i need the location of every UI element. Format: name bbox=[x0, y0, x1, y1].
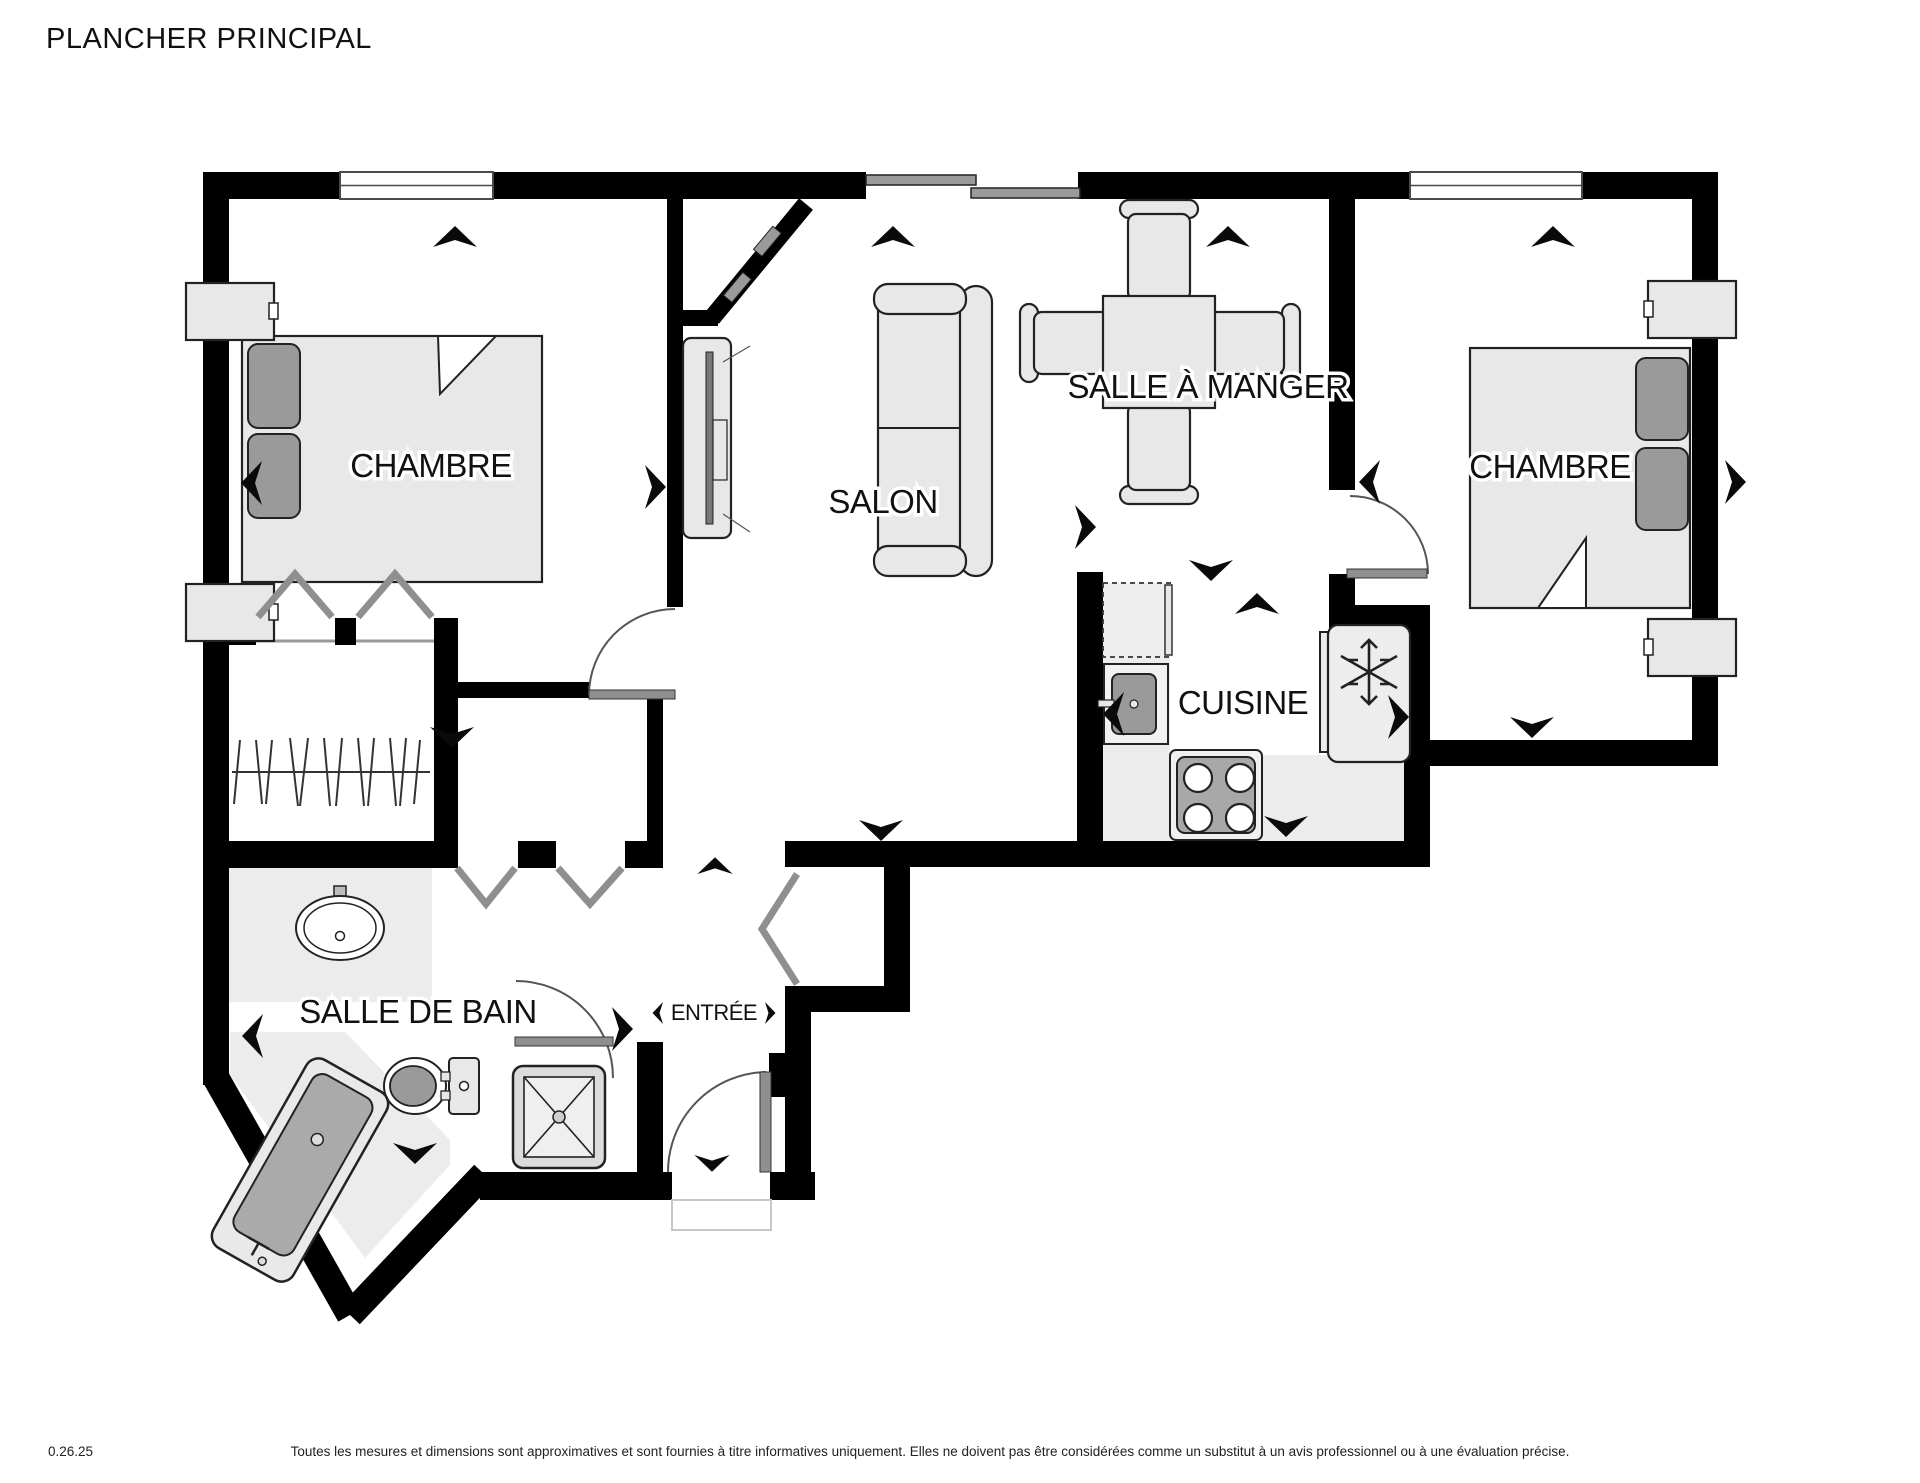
dishwasher bbox=[1103, 583, 1172, 657]
label-dining: SALLE À MANGER bbox=[1068, 368, 1349, 405]
label-entry: ENTRÉE bbox=[671, 1000, 757, 1025]
floor-plan-page: CHAMBRE SALON SALLE À MANGER CHAMBRE CUI… bbox=[0, 0, 1920, 1483]
pillow bbox=[1636, 358, 1688, 440]
door-bedroom-left bbox=[589, 609, 675, 699]
shower bbox=[513, 1066, 605, 1168]
direction-arrow-icon bbox=[697, 857, 732, 874]
direction-arrow-icon bbox=[1725, 460, 1746, 504]
pillow bbox=[1636, 448, 1688, 530]
label-bedroom-left: CHAMBRE bbox=[350, 447, 512, 484]
stove bbox=[1170, 750, 1262, 840]
sofa-armrest bbox=[874, 546, 966, 576]
burner bbox=[1226, 764, 1254, 792]
nightstand-handle bbox=[269, 303, 278, 319]
chair bbox=[1128, 214, 1190, 300]
direction-arrow-icon bbox=[1510, 717, 1554, 738]
direction-arrow-icon bbox=[612, 1007, 633, 1051]
sliding-door bbox=[866, 175, 1080, 198]
door-entry bbox=[668, 1072, 771, 1172]
direction-arrow-icon bbox=[653, 1002, 664, 1024]
refrigerator bbox=[1320, 625, 1410, 762]
bifold-bathroom-closet bbox=[558, 868, 622, 904]
direction-arrow-icon bbox=[694, 1155, 729, 1172]
nightstand bbox=[186, 283, 274, 340]
sofa-armrest bbox=[874, 284, 966, 314]
nightstand-handle bbox=[1644, 301, 1653, 317]
label-kitchen: CUISINE bbox=[1178, 684, 1308, 721]
label-bedroom-right: CHAMBRE bbox=[1469, 448, 1631, 485]
direction-arrow-icon bbox=[1189, 560, 1233, 581]
window-bedroom-left bbox=[340, 172, 493, 199]
tv-screen bbox=[706, 352, 713, 524]
door-bedroom-right bbox=[1347, 496, 1428, 578]
drain bbox=[1130, 700, 1138, 708]
bifold-entry-closet bbox=[762, 874, 797, 984]
sofa bbox=[874, 284, 992, 576]
direction-arrow-icon bbox=[1206, 226, 1250, 247]
direction-arrow-icon bbox=[433, 226, 477, 247]
nightstand-handle bbox=[1644, 639, 1653, 655]
direction-arrow-icon bbox=[1075, 505, 1096, 549]
direction-arrow-icon bbox=[871, 226, 915, 247]
dining-set bbox=[1020, 200, 1300, 504]
entry-threshold bbox=[672, 1200, 771, 1230]
burner bbox=[1226, 804, 1254, 832]
page-title: PLANCHER PRINCIPAL bbox=[46, 23, 372, 55]
tv-console bbox=[683, 338, 750, 538]
nightstand bbox=[1648, 619, 1736, 676]
label-salon: SALON bbox=[828, 483, 937, 520]
footer-disclaimer: Toutes les mesures et dimensions sont ap… bbox=[291, 1444, 1570, 1459]
direction-arrow-icon bbox=[645, 465, 666, 509]
direction-arrow-icon bbox=[1235, 593, 1279, 614]
burner bbox=[1184, 804, 1212, 832]
direction-arrow-icon bbox=[1531, 226, 1575, 247]
drain bbox=[336, 932, 345, 941]
shower-drain bbox=[553, 1111, 565, 1123]
toilet bbox=[384, 1058, 479, 1114]
label-bathroom: SALLE DE BAIN bbox=[299, 993, 536, 1030]
direction-arrow-icon bbox=[765, 1002, 776, 1024]
sofa-backrest bbox=[960, 286, 992, 576]
kitchen-sink bbox=[1098, 664, 1168, 744]
pillow bbox=[248, 344, 300, 428]
nightstand bbox=[1648, 281, 1736, 338]
closet-rod bbox=[232, 738, 430, 806]
direction-arrow-icon bbox=[859, 820, 903, 841]
angled-wall bbox=[712, 204, 806, 318]
burner bbox=[1184, 764, 1212, 792]
window-bedroom-right bbox=[1410, 172, 1582, 199]
floor-plan-drawing: CHAMBRE SALON SALLE À MANGER CHAMBRE CUI… bbox=[0, 0, 1920, 1483]
footer-version: 0.26.25 bbox=[48, 1444, 93, 1459]
bifold-bathroom-closet bbox=[457, 868, 515, 904]
chair bbox=[1128, 404, 1190, 490]
